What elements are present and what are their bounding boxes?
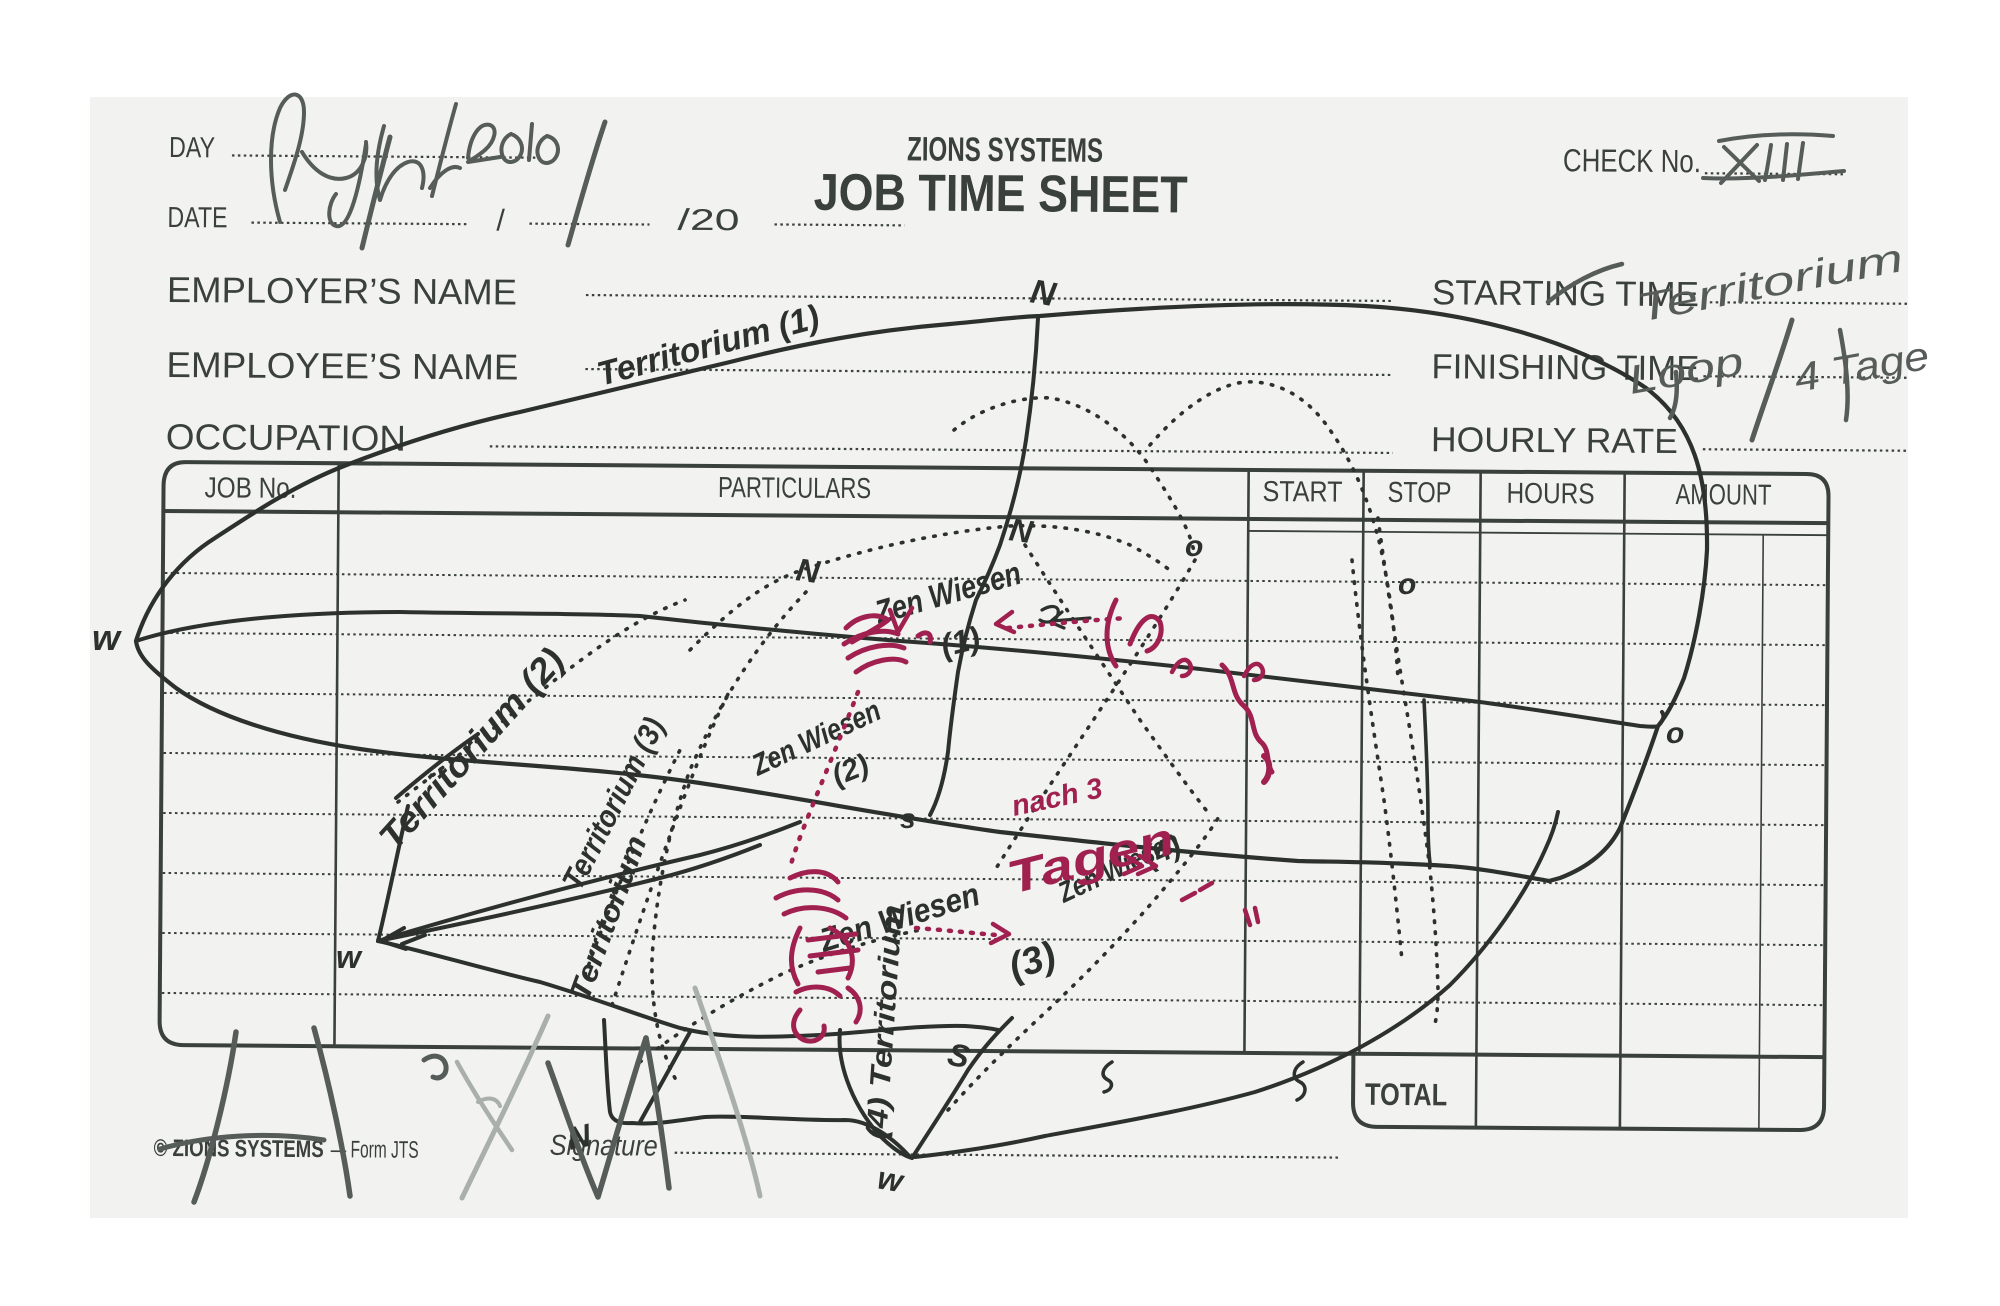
svg-text:w: w — [875, 1159, 908, 1199]
svg-text:o: o — [1666, 717, 1684, 750]
svg-text:4 Tage: 4 Tage — [1791, 334, 1933, 401]
svg-text:o: o — [1185, 530, 1203, 563]
svg-text:(2): (2) — [827, 748, 873, 792]
svg-text:w: w — [92, 617, 122, 658]
svg-text:o: o — [1398, 568, 1416, 601]
svg-text:(1): (1) — [937, 619, 984, 663]
svg-text:w: w — [336, 939, 363, 975]
svg-text:N: N — [1007, 511, 1036, 550]
svg-text:(3): (3) — [1004, 934, 1061, 988]
svg-text:Territorium (1): Territorium (1) — [593, 298, 823, 394]
svg-text:Territorium: Territorium — [1633, 236, 1906, 331]
svg-text:N: N — [794, 551, 823, 590]
svg-text:N: N — [1028, 272, 1060, 314]
svg-text:s: s — [900, 803, 916, 834]
svg-text:Loop: Loop — [1625, 339, 1747, 402]
svg-text:Territorium (2): Territorium (2) — [370, 640, 572, 858]
svg-text:nach 3: nach 3 — [1009, 772, 1106, 822]
